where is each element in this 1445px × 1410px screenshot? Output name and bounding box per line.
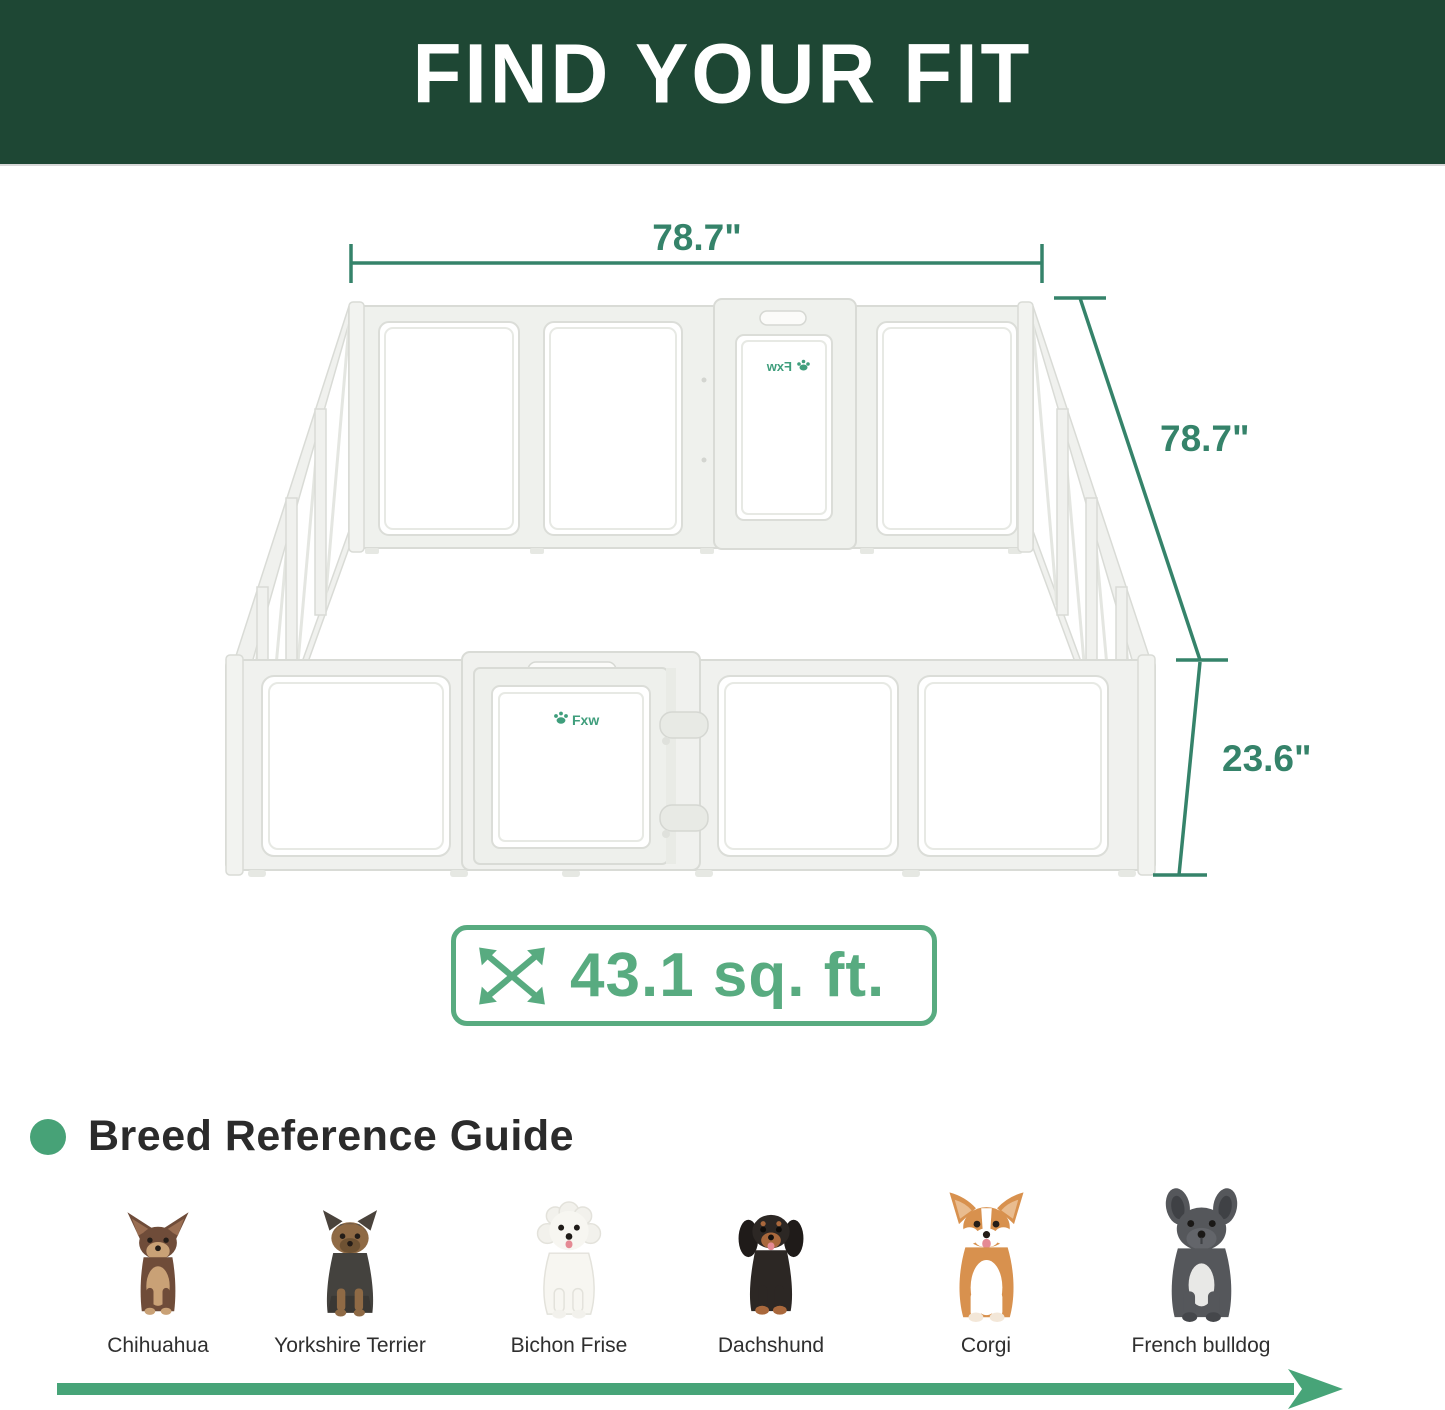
- breed-item-dachshund: Dachshund: [671, 1198, 871, 1358]
- dog-image-bichon-frise: [510, 1200, 628, 1328]
- breed-item-french-bulldog: French bulldog: [1101, 1188, 1301, 1358]
- breed-reference-row: Chihuahua Yorkshire Terrier: [0, 1185, 1445, 1370]
- expand-arrows-icon: [472, 942, 552, 1010]
- breed-item-bichon-frise: Bichon Frise: [469, 1200, 669, 1358]
- page: FIND YOUR FIT: [0, 0, 1445, 1410]
- breed-label: Dachshund: [718, 1334, 824, 1358]
- dog-image-dachshund: [712, 1198, 830, 1328]
- breed-label: Yorkshire Terrier: [274, 1334, 426, 1358]
- dog-image-corgi: [923, 1190, 1050, 1328]
- dog-image-chihuahua: [104, 1210, 212, 1328]
- breed-item-yorkshire-terrier: Yorkshire Terrier: [250, 1206, 450, 1358]
- playpen-front-wall: Fxw: [226, 652, 1155, 877]
- size-scale-arrow: [0, 1366, 1445, 1410]
- breed-label: Corgi: [961, 1334, 1011, 1358]
- bullet-dot-icon: [30, 1119, 66, 1155]
- breed-guide-heading-row: Breed Reference Guide: [30, 1112, 574, 1161]
- svg-text:Fxw: Fxw: [572, 712, 599, 728]
- playpen-back-gate: Fxw: [714, 299, 856, 549]
- area-badge: 43.1 sq. ft.: [451, 925, 937, 1026]
- breed-label: Chihuahua: [107, 1334, 209, 1358]
- header-banner: FIND YOUR FIT: [0, 0, 1445, 166]
- dog-image-yorkshire-terrier: [294, 1206, 406, 1328]
- breed-guide-heading: Breed Reference Guide: [88, 1112, 574, 1161]
- breed-label: French bulldog: [1132, 1334, 1271, 1358]
- breed-item-chihuahua: Chihuahua: [58, 1210, 258, 1358]
- playpen-back-wall: Fxw: [349, 299, 1033, 554]
- breed-item-corgi: Corgi: [886, 1190, 1086, 1358]
- page-title: FIND YOUR FIT: [413, 26, 1033, 123]
- gate-latch-bottom: [660, 805, 708, 831]
- playpen-front-gate: Fxw: [462, 652, 708, 870]
- breed-label: Bichon Frise: [511, 1334, 628, 1358]
- dimension-depth-label: 78.7": [1160, 418, 1250, 459]
- gate-latch-top: [660, 712, 708, 738]
- dimension-height-label: 23.6": [1222, 738, 1312, 779]
- dimension-width-label: 78.7": [652, 217, 742, 258]
- dog-image-french-bulldog: [1137, 1188, 1266, 1328]
- area-label: 43.1 sq. ft.: [570, 940, 885, 1011]
- svg-text:Fxw: Fxw: [766, 359, 792, 374]
